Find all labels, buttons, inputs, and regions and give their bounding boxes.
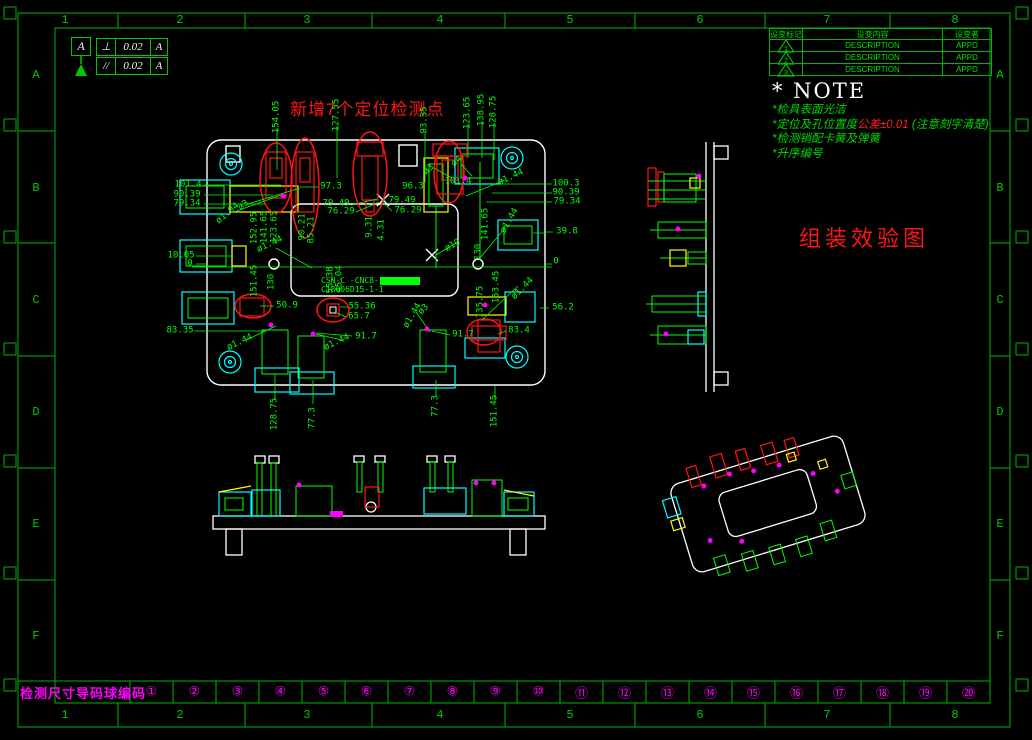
zone-row-label: B <box>32 181 39 195</box>
parallelism-icon: // <box>96 57 116 75</box>
note-line-text: (注意刻字清楚) <box>909 119 989 131</box>
zone-column-label: 5 <box>566 708 573 722</box>
zone-column-label: 1 <box>61 708 68 722</box>
revision-row: 3 DESCRIPTION APPD <box>770 64 992 76</box>
dimension-label: 85.21 <box>308 216 317 243</box>
dimension-label: 55.36 <box>348 303 375 312</box>
dimension-label: 65.7 <box>348 313 370 322</box>
assembly-view-label: 组装效验图 <box>799 221 929 253</box>
dimension-label: 138.95 <box>478 94 487 127</box>
zone-row-label: E <box>996 517 1003 531</box>
perpendicularity-icon: ⊥ <box>96 38 116 56</box>
red-clamps <box>240 142 506 352</box>
revision-approved: APPD <box>942 63 992 76</box>
dimension-label: 76.29 <box>394 207 421 216</box>
dimension-label: 91.7 <box>355 333 377 342</box>
dimension-label: 4.31 <box>378 219 387 241</box>
zone-row-label: F <box>32 629 39 643</box>
zone-column-label: 8 <box>951 708 958 722</box>
zone-column-label: 2 <box>176 13 183 27</box>
strip-number: ⑪ <box>575 683 588 702</box>
dimension-label: 152.95 <box>251 212 260 245</box>
side-view <box>646 142 728 392</box>
strip-number: ⑯ <box>790 683 803 702</box>
dimension-label: 101.4 <box>174 181 201 190</box>
strip-number: ⑧ <box>447 685 459 700</box>
dimension-label: 77.3 <box>432 395 441 417</box>
strip-number: ⑨ <box>490 685 502 700</box>
dimension-label: 77.3 <box>309 407 318 429</box>
strip-number: ⑦ <box>404 685 416 700</box>
dimension-label: 153.45 <box>493 271 502 304</box>
datum-reference: A <box>150 57 168 75</box>
zone-row-label: C <box>32 293 39 307</box>
dimension-label: 128.75 <box>271 398 280 431</box>
bottom-left-label: 检测尺寸导码球编码 <box>20 683 146 702</box>
strip-number: ⑱ <box>876 683 889 702</box>
redacted-bar <box>380 277 420 285</box>
strip-number: ⑭ <box>704 683 717 702</box>
note-line: *检具表面光洁 <box>772 103 1007 118</box>
zone-column-label: 3 <box>303 708 310 722</box>
zone-row-label: B <box>996 181 1003 195</box>
dimension-label: 39.8 <box>556 228 578 237</box>
datum-leader <box>75 55 87 76</box>
dimension-label: 151.45 <box>251 265 260 298</box>
dimension-label: 0 <box>187 260 192 269</box>
dimension-label: 97.3 <box>320 183 342 192</box>
dimension-label: 127.55 <box>333 99 342 132</box>
zone-row-label: A <box>996 68 1003 82</box>
strip-number: ⑮ <box>747 683 760 702</box>
dimension-label: 154.05 <box>273 101 282 134</box>
strip-number: ⑫ <box>618 683 631 702</box>
zone-column-label: 4 <box>436 708 443 722</box>
cyan-fixtures <box>180 147 538 394</box>
svg-text:3: 3 <box>784 70 788 77</box>
strip-number: ④ <box>275 685 287 700</box>
dimension-label: 79.34 <box>173 200 200 209</box>
tolerance-highlight: 公差±0.01 <box>857 119 909 131</box>
dimension-label: 135.75 <box>477 286 486 319</box>
datum-symbol: A <box>71 37 91 56</box>
zone-column-label: 4 <box>436 13 443 27</box>
cad-drawing-sheet: A ⊥ 0.02 A // 0.02 A 设变标记 设变内容 设变者 1 DES… <box>0 0 1032 740</box>
dimension-label: 56.2 <box>552 304 574 313</box>
note-line: *升序编号 <box>772 147 1007 162</box>
perpendicularity-frame: ⊥ 0.02 A <box>97 38 168 56</box>
dimension-label: 101.4 <box>444 178 471 187</box>
zone-column-label: 6 <box>696 13 703 27</box>
zone-row-label: E <box>32 517 39 531</box>
dimension-label: 0 <box>553 258 558 267</box>
strip-number: ② <box>189 685 201 700</box>
dimension-label: 9.31 <box>366 216 375 238</box>
dimension-label: 83.35 <box>166 327 193 336</box>
strip-number: ⑤ <box>318 685 330 700</box>
dimension-label: 130 <box>475 244 484 260</box>
strip-number: ③ <box>232 685 244 700</box>
note-line: *定位及孔位置度公差±0.01 (注意刻字清楚) <box>772 118 1007 133</box>
zone-column-label: 5 <box>566 13 573 27</box>
strip-number: ⑥ <box>361 685 373 700</box>
note-block: * NOTE *检具表面光洁 *定位及孔位置度公差±0.01 (注意刻字清楚) … <box>772 79 1007 161</box>
zone-column-label: 7 <box>823 708 830 722</box>
dimension-label: 50.9 <box>276 302 298 311</box>
zone-row-label: C <box>996 293 1003 307</box>
dimension-label: 79.49 <box>388 197 415 206</box>
dimension-label: 79.34 <box>553 198 580 207</box>
strip-number: ⑲ <box>919 683 932 702</box>
zone-row-label: D <box>996 405 1003 419</box>
dimension-label: 151.45 <box>491 395 500 428</box>
top-view <box>180 121 553 404</box>
zone-column-label: 2 <box>176 708 183 722</box>
revision-table: 设变标记 设变内容 设变者 1 DESCRIPTION APPD 2 DESCR… <box>770 29 992 76</box>
strip-number: ⑬ <box>661 683 674 702</box>
note-line: *检测销配卡簧及弹簧 <box>772 132 1007 147</box>
dimension-label: 93.35 <box>421 106 430 133</box>
zone-column-label: 3 <box>303 13 310 27</box>
iso-view <box>654 418 871 590</box>
zone-column-label: 8 <box>951 13 958 27</box>
front-view <box>213 456 545 555</box>
note-line-text: *定位及孔位置度 <box>772 119 857 131</box>
strip-number: ① <box>146 685 158 700</box>
zone-column-label: 6 <box>696 708 703 722</box>
parallelism-frame: // 0.02 A <box>97 57 168 75</box>
datum-reference: A <box>150 38 168 56</box>
strip-number: ⑩ <box>533 685 545 700</box>
zone-row-label: A <box>32 68 39 82</box>
dimension-label: 141.65 <box>482 208 491 241</box>
dimension-label: 123.65 <box>464 97 473 130</box>
dimension-label: 91.7 <box>452 331 474 340</box>
zone-column-label: 7 <box>823 13 830 27</box>
revision-triangle-icon: 3 <box>777 63 795 77</box>
tolerance-value: 0.02 <box>115 38 151 56</box>
dimension-label: 83.4 <box>508 327 530 336</box>
strip-number: ⑰ <box>833 683 846 702</box>
tolerance-value: 0.02 <box>115 57 151 75</box>
dimension-label: 130 <box>268 274 277 290</box>
note-title: * NOTE <box>772 79 1007 103</box>
zone-column-label: 1 <box>61 13 68 27</box>
zone-row-label: D <box>32 405 39 419</box>
strip-number: ⑳ <box>962 683 975 702</box>
revision-description: DESCRIPTION <box>802 63 943 76</box>
dimension-label: 76.29 <box>327 208 354 217</box>
dimension-label: 45.04 <box>336 265 345 292</box>
dimension-label: 96.3 <box>402 183 424 192</box>
dimension-label: 128.75 <box>490 96 499 129</box>
zone-row-label: F <box>996 629 1003 643</box>
